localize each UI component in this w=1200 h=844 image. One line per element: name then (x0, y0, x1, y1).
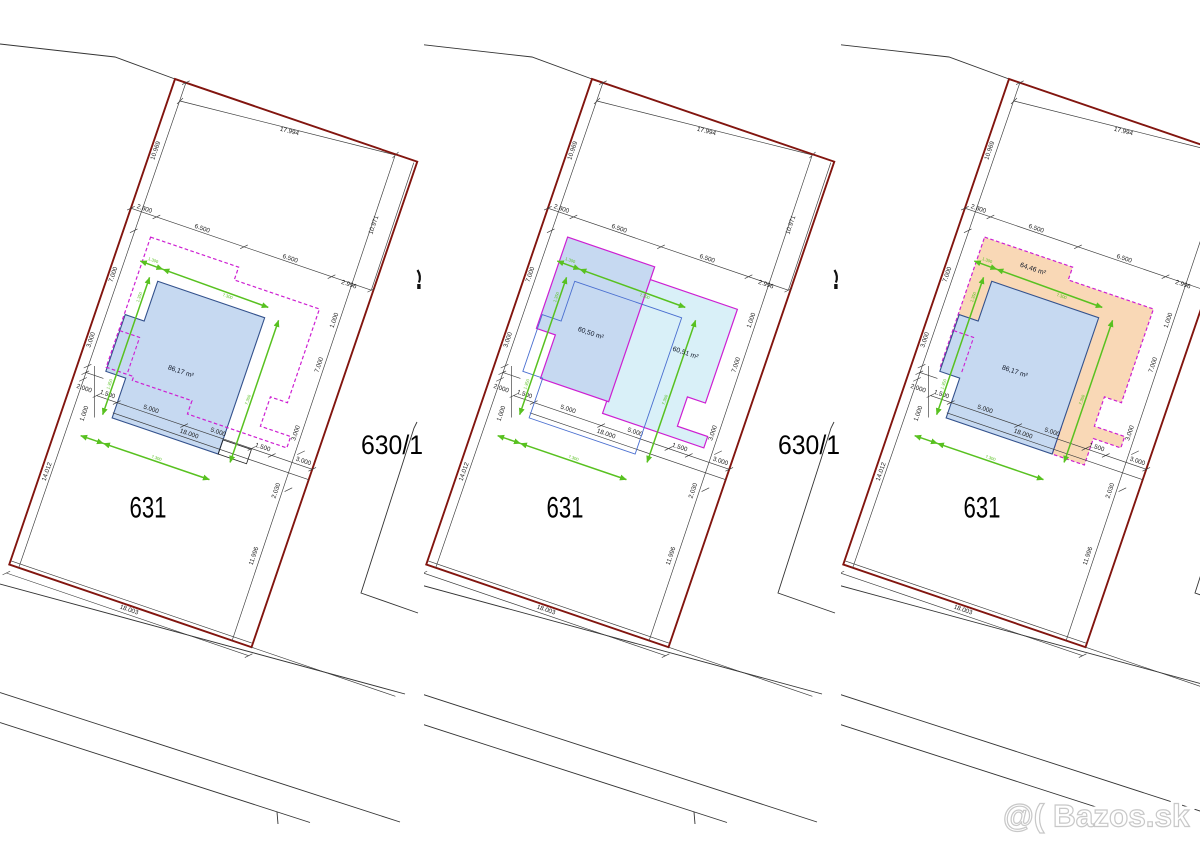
svg-text:630/1: 630/1 (361, 430, 423, 460)
svg-text:@( Bazos.sk: @( Bazos.sk (1003, 798, 1190, 834)
svg-text:630/1: 630/1 (778, 430, 840, 460)
